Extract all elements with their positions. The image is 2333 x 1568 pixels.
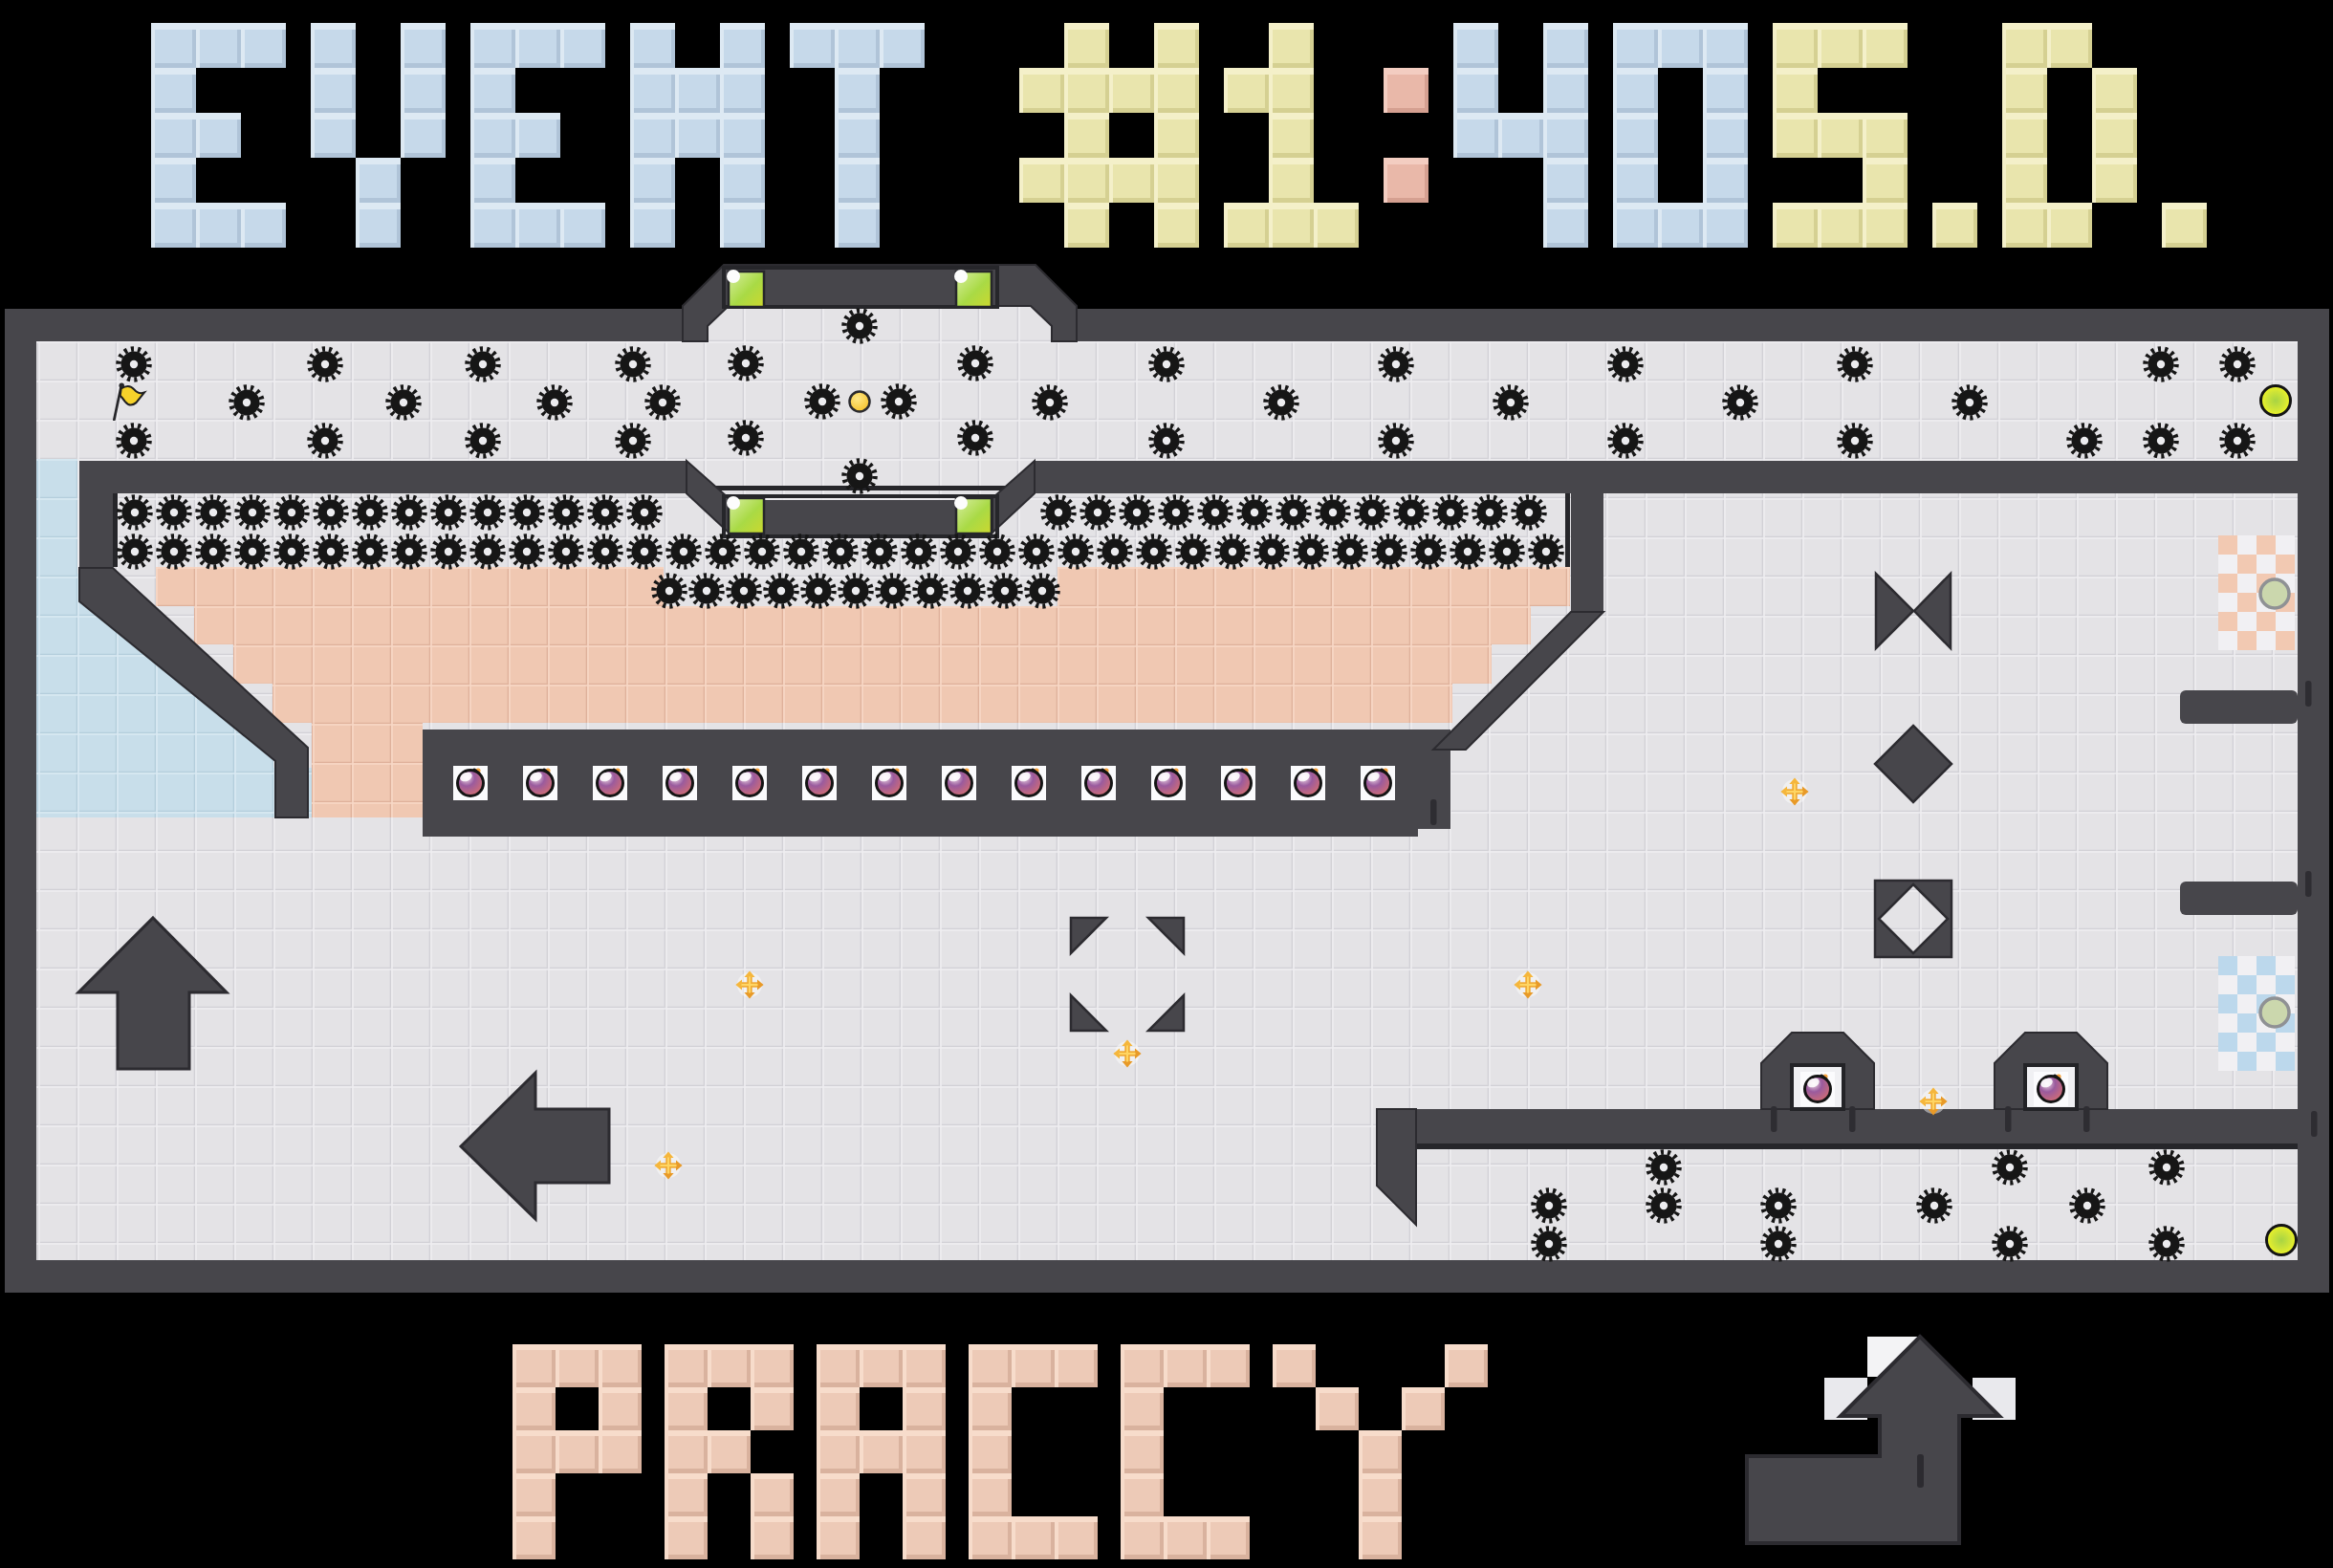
sand-tiles xyxy=(273,684,1452,723)
footer-block xyxy=(1207,1516,1250,1559)
footer-block xyxy=(903,1516,946,1559)
wall xyxy=(2180,690,2298,724)
pit-border xyxy=(1412,1143,2298,1149)
wall xyxy=(79,461,687,493)
bomb-icon xyxy=(807,768,833,795)
footer-block xyxy=(708,1344,751,1387)
gem-row-wall xyxy=(763,272,956,304)
footer-block xyxy=(751,1473,794,1516)
footer-block xyxy=(1121,1344,1164,1387)
footer-block xyxy=(1121,1430,1164,1473)
wall-notch xyxy=(2083,1106,2090,1132)
player-orb xyxy=(2267,1226,2297,1255)
bomb-icon xyxy=(1805,1074,1831,1101)
wall-notch xyxy=(1849,1106,1856,1132)
footer-block xyxy=(1207,1344,1250,1387)
bomb-icon xyxy=(1086,768,1112,795)
footer-block xyxy=(512,1344,556,1387)
wall xyxy=(1571,461,1603,612)
footer-block xyxy=(512,1430,556,1473)
footer-block xyxy=(1164,1344,1207,1387)
footer-block xyxy=(751,1516,794,1559)
footer-block xyxy=(903,1344,946,1387)
footer-block xyxy=(817,1387,860,1430)
wall xyxy=(5,309,683,341)
pad-orb xyxy=(2260,998,2289,1027)
footer-block xyxy=(751,1387,794,1430)
bomb-icon xyxy=(1365,768,1391,795)
player-orb xyxy=(2261,386,2291,416)
wall xyxy=(2180,882,2298,915)
footer-block xyxy=(512,1387,556,1430)
bomb-icon xyxy=(2039,1074,2064,1101)
footer-block xyxy=(1012,1344,1055,1387)
footer-block xyxy=(1359,1473,1402,1516)
footer-block xyxy=(1055,1344,1098,1387)
footer-block xyxy=(860,1344,903,1387)
footer-block xyxy=(599,1430,642,1473)
sand-tiles xyxy=(194,606,1531,644)
sand-tiles xyxy=(1057,567,1570,606)
gem-shine xyxy=(727,496,740,510)
water-tiles xyxy=(36,768,313,817)
bomb-icon xyxy=(667,768,693,795)
bomb-icon xyxy=(1016,768,1042,795)
footer-arrow-notch xyxy=(1917,1454,1924,1488)
footer-block xyxy=(1121,1516,1164,1559)
footer-block xyxy=(903,1387,946,1430)
footer-block xyxy=(512,1516,556,1559)
footer-block xyxy=(969,1430,1012,1473)
bomb-icon xyxy=(528,768,554,795)
footer-block xyxy=(665,1473,708,1516)
wall xyxy=(1077,309,2328,341)
footer-block xyxy=(599,1344,642,1387)
footer-block xyxy=(751,1344,794,1387)
footer-block xyxy=(860,1430,903,1473)
bomb-icon xyxy=(458,768,484,795)
gem-shine xyxy=(954,270,968,283)
bomb-icon xyxy=(737,768,763,795)
wall xyxy=(5,1260,2328,1293)
bomb-icon xyxy=(1226,768,1252,795)
bomb-icon xyxy=(947,768,972,795)
gem-shine xyxy=(954,496,968,510)
wall xyxy=(1035,461,2298,493)
sand-tiles xyxy=(233,644,1492,684)
wall-notch xyxy=(2311,1111,2318,1137)
footer-block xyxy=(665,1516,708,1559)
footer-block xyxy=(817,1430,860,1473)
wall-notch xyxy=(1771,1106,1777,1132)
footer-block xyxy=(817,1473,860,1516)
footer-block xyxy=(817,1516,860,1559)
footer-block xyxy=(599,1387,642,1430)
wall-notch xyxy=(2005,1106,2012,1132)
footer-block xyxy=(817,1344,860,1387)
wall-notch xyxy=(2305,681,2312,707)
footer-block xyxy=(512,1473,556,1516)
game-screen[interactable]: { "title": { "text": "EVENT #1:405.D.", … xyxy=(0,0,2333,1568)
chamber-floor xyxy=(708,306,1052,341)
wall xyxy=(1377,1109,2298,1143)
water-tiles xyxy=(36,459,77,574)
footer-block xyxy=(1316,1387,1359,1430)
footer-block xyxy=(1055,1516,1098,1559)
bomb-icon xyxy=(1296,768,1321,795)
wall-notch xyxy=(1430,799,1437,825)
wall xyxy=(5,309,36,1293)
pit-border xyxy=(113,486,118,567)
footer-block xyxy=(1012,1516,1055,1559)
footer-block xyxy=(665,1387,708,1430)
footer-block xyxy=(903,1473,946,1516)
footer-block xyxy=(708,1430,751,1473)
footer-block xyxy=(969,1473,1012,1516)
pad-orb xyxy=(2260,579,2289,608)
footer-block xyxy=(969,1344,1012,1387)
footer-block xyxy=(1273,1344,1316,1387)
gem-row-wall xyxy=(763,500,956,534)
sand-tiles xyxy=(312,723,423,817)
bomb-icon xyxy=(1156,768,1182,795)
wall xyxy=(2298,309,2329,1293)
bomb-icon xyxy=(598,768,623,795)
footer-block xyxy=(1359,1430,1402,1473)
footer-block xyxy=(665,1430,708,1473)
wall xyxy=(79,461,113,571)
footer-block xyxy=(969,1516,1012,1559)
footer-block xyxy=(903,1430,946,1473)
footer-block xyxy=(1164,1516,1207,1559)
footer-block xyxy=(556,1344,599,1387)
wall-notch xyxy=(2305,871,2312,897)
footer-block xyxy=(1359,1516,1402,1559)
level-map[interactable] xyxy=(0,0,2333,1568)
pit-border xyxy=(1565,486,1570,567)
sand-tiles xyxy=(156,567,664,606)
bomb-icon xyxy=(877,768,903,795)
gem-shine xyxy=(727,270,740,283)
footer-block xyxy=(969,1387,1012,1430)
footer-block xyxy=(1121,1387,1164,1430)
footer-block xyxy=(1445,1344,1488,1387)
footer-block xyxy=(1121,1473,1164,1516)
wall xyxy=(423,730,1418,837)
coin xyxy=(850,392,870,412)
footer-block xyxy=(665,1344,708,1387)
water-tiles xyxy=(36,730,273,768)
footer-block xyxy=(1402,1387,1445,1430)
footer-block xyxy=(556,1430,599,1473)
